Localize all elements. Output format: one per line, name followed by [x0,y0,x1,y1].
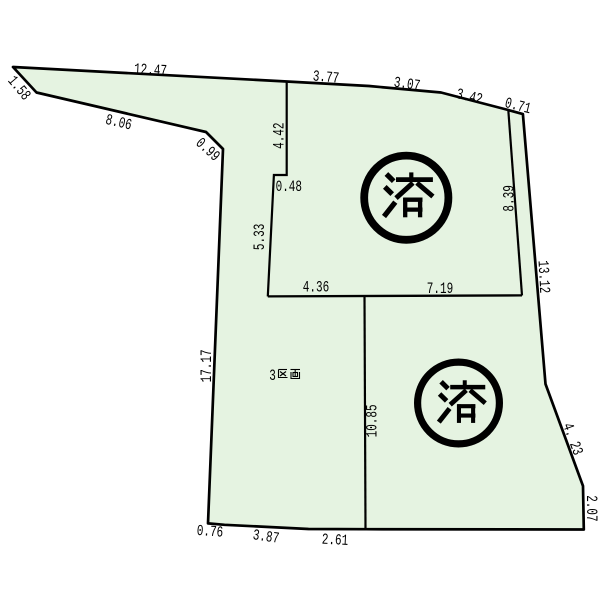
svg-text:8.39: 8.39 [502,185,519,211]
svg-text:2.61: 2.61 [321,532,348,551]
svg-text:4.42: 4.42 [272,123,289,149]
svg-text:3.07: 3.07 [393,75,422,96]
svg-text:5.33: 5.33 [253,224,270,250]
svg-text:0.48: 0.48 [276,179,302,196]
svg-text:3: 3 [269,368,276,385]
svg-text:2.07: 2.07 [581,495,598,521]
svg-text:3.87: 3.87 [252,528,281,549]
svg-text:12.47: 12.47 [134,62,168,81]
svg-text:3.77: 3.77 [312,69,340,88]
svg-text:13.12: 13.12 [533,260,552,294]
svg-text:0.76: 0.76 [196,523,224,542]
svg-text:17.17: 17.17 [199,349,216,382]
svg-text:7.19: 7.19 [427,281,453,298]
svg-text:10.85: 10.85 [365,404,382,437]
svg-text:4.36: 4.36 [303,280,329,297]
